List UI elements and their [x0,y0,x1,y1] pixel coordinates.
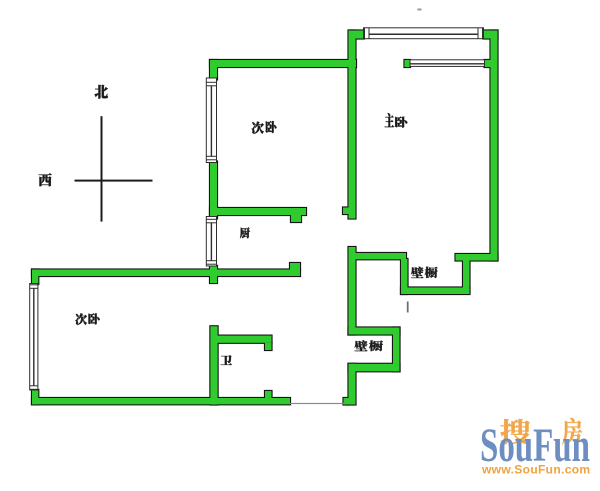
svg-text:www.SouFun.com: www.SouFun.com [481,463,590,477]
